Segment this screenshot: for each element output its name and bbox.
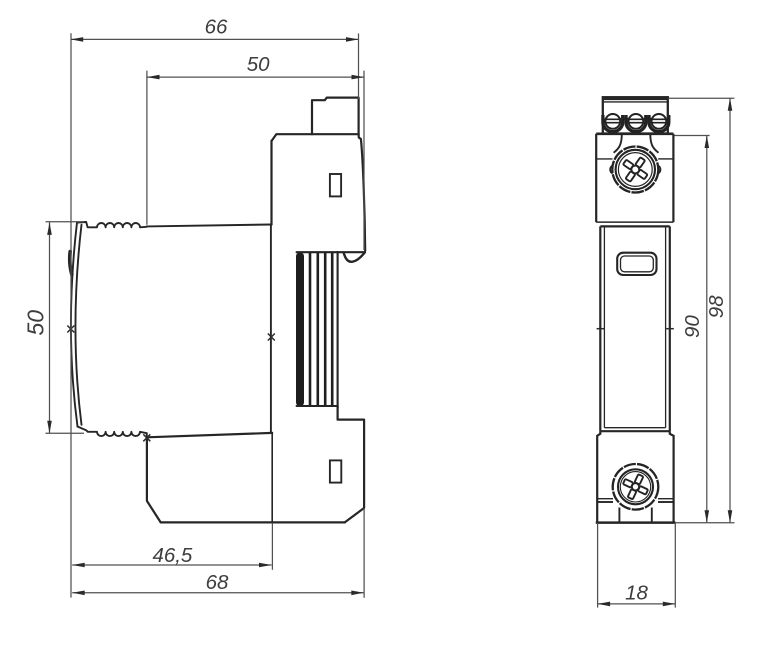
svg-text:90: 90 — [681, 315, 704, 338]
svg-text:98: 98 — [705, 295, 728, 318]
svg-text:50: 50 — [247, 53, 270, 76]
svg-text:68: 68 — [206, 571, 229, 594]
svg-text:46,5: 46,5 — [152, 544, 192, 567]
svg-text:66: 66 — [205, 16, 228, 39]
svg-text:18: 18 — [625, 581, 648, 604]
svg-text:50: 50 — [23, 310, 49, 336]
